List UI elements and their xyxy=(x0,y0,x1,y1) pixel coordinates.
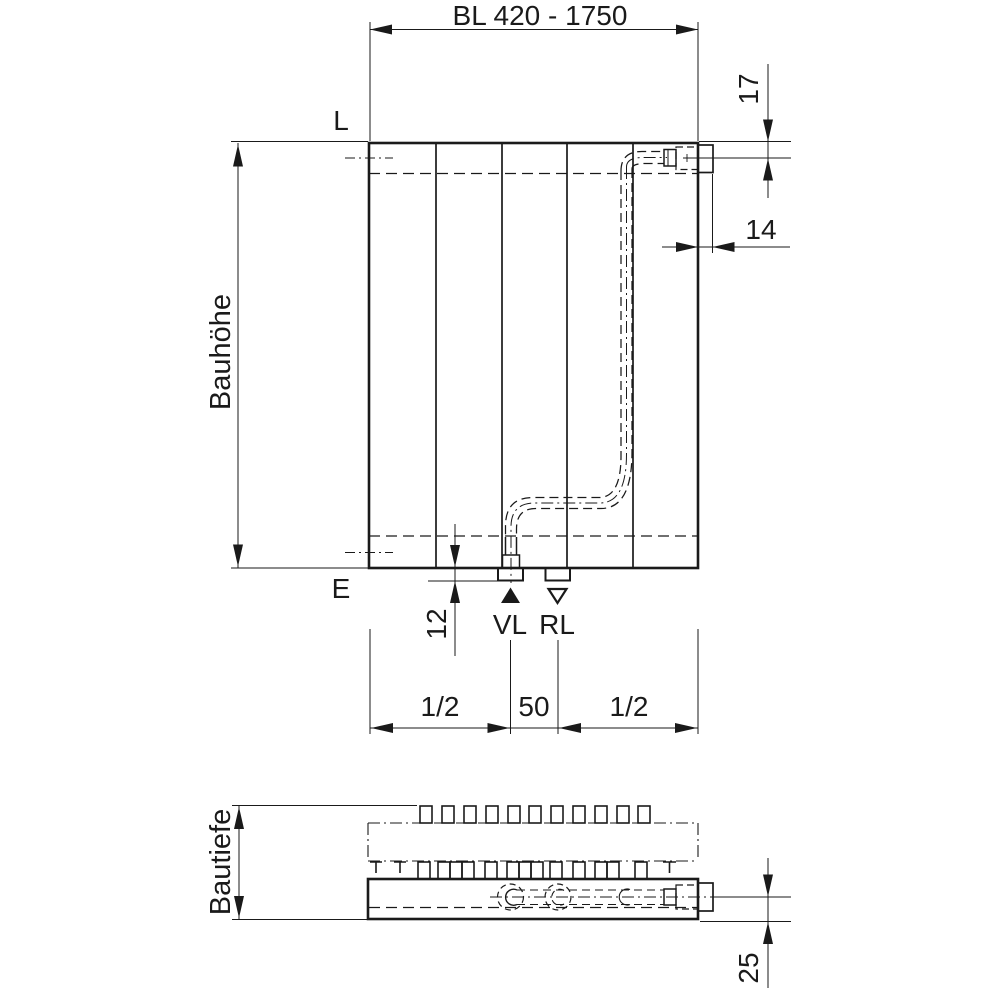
supply-label: VL xyxy=(493,609,527,640)
front-view xyxy=(345,143,713,583)
dim-25-label: 25 xyxy=(733,952,764,983)
phantom-panel-outline xyxy=(368,823,698,861)
convector-fins-lower xyxy=(370,862,676,879)
return-flow-arrow-icon xyxy=(549,589,567,603)
dimension-lines-bottom xyxy=(232,806,791,989)
panel-section-lines xyxy=(436,143,633,568)
dim-12-label: 12 xyxy=(421,608,452,639)
dim-half-right-label: 1/2 xyxy=(610,691,649,722)
radiator-technical-drawing: BL 420 - 1750 L E Bauhöhe 17 14 12 VL RL… xyxy=(0,0,1000,1000)
dimension-arrows-bottom xyxy=(234,807,773,944)
dim-50-label: 50 xyxy=(518,691,549,722)
bottom-connection-stubs xyxy=(498,568,570,581)
dim-14-label: 14 xyxy=(745,214,776,245)
depth-label: Bautiefe xyxy=(205,809,237,915)
internal-riser-pipe xyxy=(503,152,668,584)
return-stub xyxy=(546,568,571,581)
side-connection-plate xyxy=(698,145,713,173)
radiator-body-outline xyxy=(369,143,698,568)
return-label: RL xyxy=(539,609,575,640)
dim-width-label: BL 420 - 1750 xyxy=(453,0,628,31)
convector-fins-upper xyxy=(420,806,650,823)
dim-half-left-label: 1/2 xyxy=(421,691,460,722)
pipe-bores xyxy=(490,884,714,910)
height-label: Bauhöhe xyxy=(205,294,237,410)
vent-label: L xyxy=(333,105,349,136)
supply-flow-arrow-icon xyxy=(501,588,520,604)
drain-label: E xyxy=(332,573,351,604)
bottom-section-view xyxy=(368,806,714,919)
drawing-canvas: BL 420 - 1750 L E Bauhöhe 17 14 12 VL RL… xyxy=(0,0,1000,1000)
panel-plate-outline xyxy=(368,879,698,919)
header-hidden-lines xyxy=(369,174,698,537)
top-connection-fitting xyxy=(664,145,713,173)
dim-17-label: 17 xyxy=(733,73,764,104)
